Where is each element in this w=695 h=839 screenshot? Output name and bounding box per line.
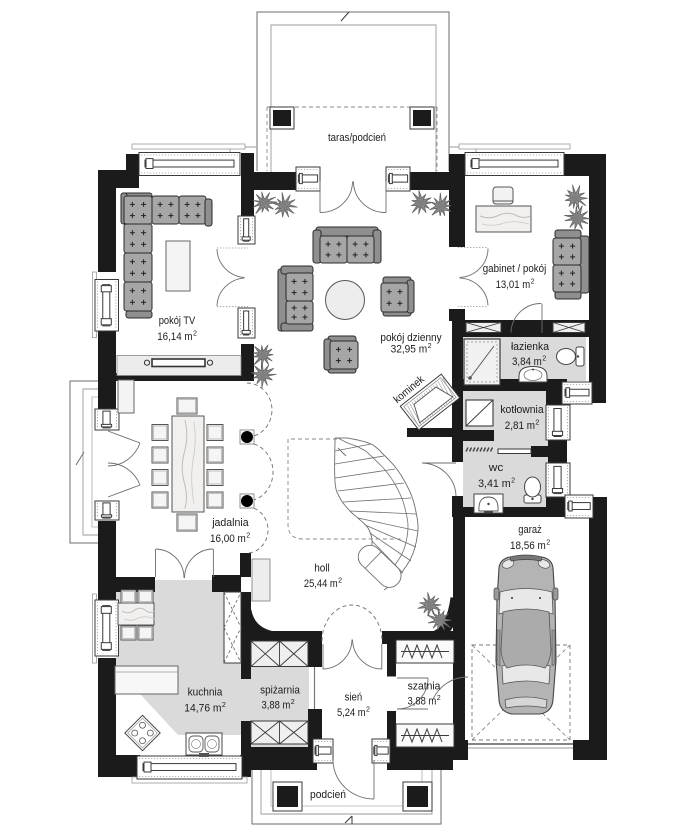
svg-text:5,24 m: 5,24 m — [337, 707, 366, 719]
svg-text:gabinet / pokój: gabinet / pokój — [483, 263, 547, 275]
svg-text:2: 2 — [535, 419, 539, 427]
svg-text:garaż: garaż — [518, 524, 541, 536]
svg-text:jadalnia: jadalnia — [211, 517, 248, 529]
svg-text:2: 2 — [428, 342, 432, 350]
svg-text:2: 2 — [222, 701, 226, 709]
svg-text:16,00 m: 16,00 m — [210, 533, 246, 545]
svg-text:2: 2 — [193, 330, 197, 338]
svg-text:18,56 m: 18,56 m — [510, 540, 546, 552]
svg-text:3,88 m: 3,88 m — [408, 696, 437, 708]
svg-text:2: 2 — [366, 706, 370, 714]
svg-text:podcień: podcień — [310, 789, 346, 801]
svg-text:3,88 m: 3,88 m — [262, 700, 291, 712]
svg-text:pokój TV: pokój TV — [159, 315, 196, 327]
svg-text:sień: sień — [345, 692, 363, 704]
svg-text:2: 2 — [246, 532, 250, 540]
svg-text:spiżarnia: spiżarnia — [260, 685, 300, 697]
svg-text:2: 2 — [542, 355, 546, 363]
svg-text:14,76 m: 14,76 m — [184, 703, 221, 715]
svg-text:2: 2 — [546, 539, 550, 547]
svg-text:2: 2 — [531, 278, 535, 286]
svg-text:wc: wc — [488, 462, 504, 474]
svg-text:łazienka: łazienka — [511, 341, 549, 353]
svg-text:2: 2 — [437, 694, 441, 702]
svg-text:szatnia: szatnia — [408, 681, 441, 693]
svg-text:32,95 m: 32,95 m — [391, 344, 428, 356]
svg-text:taras/podcień: taras/podcień — [328, 132, 386, 144]
svg-text:2: 2 — [511, 477, 515, 485]
svg-text:kuchnia: kuchnia — [188, 687, 223, 699]
svg-text:pokój dzienny: pokój dzienny — [380, 332, 442, 344]
svg-text:kotłownia: kotłownia — [500, 404, 543, 416]
svg-text:16,14 m: 16,14 m — [157, 331, 192, 343]
svg-text:13,01 m: 13,01 m — [496, 279, 531, 291]
svg-text:3,41 m: 3,41 m — [478, 478, 511, 490]
svg-text:25,44 m: 25,44 m — [304, 578, 338, 590]
svg-text:3,84 m: 3,84 m — [512, 356, 542, 368]
svg-text:2,81 m: 2,81 m — [505, 420, 535, 432]
svg-text:holl: holl — [314, 563, 330, 575]
svg-text:2: 2 — [291, 698, 295, 706]
svg-text:2: 2 — [338, 577, 342, 585]
